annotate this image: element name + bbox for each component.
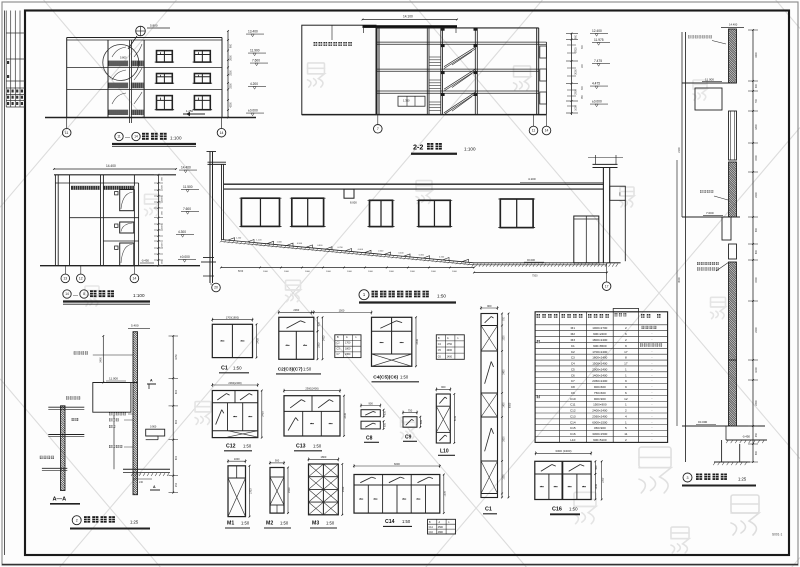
svg-text:14: 14 [220,131,224,135]
svg-text:14.400: 14.400 [729,23,738,27]
svg-text:1500: 1500 [755,155,758,161]
svg-text:C14: C14 [570,420,576,424]
svg-text:M1: M1 [571,326,576,330]
svg-text:M3: M3 [571,338,576,342]
svg-text:C5: C5 [571,367,575,371]
svg-text:6: 6 [625,391,627,395]
svg-text:—: — [73,293,78,299]
svg-text:1000: 1000 [410,271,416,273]
svg-text:700: 700 [755,98,758,103]
svg-text:6000: 6000 [394,462,400,466]
svg-text:3000: 3000 [678,277,681,283]
svg-text:1000: 1000 [326,271,332,273]
svg-text:C1: C1 [485,507,492,513]
svg-text:C9: C9 [571,391,575,395]
svg-text:150: 150 [175,482,178,487]
svg-text:C7: C7 [571,379,575,383]
svg-text:1400: 1400 [447,355,453,358]
svg-text:C8: C8 [366,436,373,442]
svg-text:2400: 2400 [342,486,345,492]
svg-text:A: A [150,379,153,383]
svg-text:1800: 1800 [755,124,758,130]
svg-text:3400: 3400 [100,357,103,363]
svg-text:M3: M3 [312,521,319,527]
svg-text:3400: 3400 [755,52,758,58]
svg-text:2: 2 [625,338,627,342]
svg-text:8: 8 [83,292,85,296]
svg-text:1:50: 1:50 [437,294,446,299]
svg-text:1000: 1000 [368,271,374,273]
svg-text:1000: 1000 [595,483,598,489]
svg-text:·: · [651,432,652,436]
svg-text:C4(C5)(C6): C4(C5)(C6) [373,375,398,381]
svg-text:C16: C16 [429,532,434,534]
svg-text:1000: 1000 [452,271,458,273]
svg-text:1500: 1500 [755,277,758,283]
svg-text:1800×2400: 1800×2400 [592,356,607,360]
svg-text:2300: 2300 [755,400,758,406]
svg-text:M1: M1 [227,521,234,527]
svg-text:11: 11 [624,432,627,436]
svg-text:2360: 2360 [345,353,351,356]
svg-text:1:50: 1:50 [400,375,409,380]
svg-text:1000: 1000 [305,271,311,273]
svg-text:2000: 2000 [447,349,453,352]
svg-text:·: · [651,379,652,383]
svg-text:C2: C2 [571,350,575,354]
svg-text:1.000: 1.000 [277,241,283,243]
svg-text:14.100: 14.100 [403,15,413,19]
svg-text:3300×1500: 3300×1500 [592,432,607,436]
svg-text:2: 2 [76,518,78,522]
svg-text:1700: 1700 [345,342,351,345]
svg-text:17: 17 [624,350,628,354]
svg-text:1900: 1900 [504,474,506,480]
svg-text:2400: 2400 [416,338,419,344]
svg-text:1700×2400: 1700×2400 [592,350,607,354]
svg-text:12: 12 [624,397,628,401]
svg-text:13: 13 [63,277,67,281]
svg-text:11: 11 [65,131,69,135]
svg-text:17: 17 [605,284,609,288]
svg-text:2: 2 [625,409,627,413]
svg-text:C12: C12 [570,409,576,413]
svg-text:4800: 4800 [438,532,444,534]
svg-text:0.600: 0.600 [358,249,364,251]
svg-text:600: 600 [383,411,386,416]
svg-text:±0.000: ±0.000 [592,100,602,104]
svg-text:2360×2400: 2360×2400 [592,379,607,383]
svg-text:1000: 1000 [234,457,240,461]
svg-text:900: 900 [230,43,233,48]
svg-text:·: · [651,350,652,354]
svg-text:900: 900 [175,419,178,424]
svg-text:·: · [651,373,652,377]
svg-text:C2(C3)(C7): C2(C3)(C7) [278,367,303,373]
svg-text:900×600: 900×600 [594,385,606,389]
svg-text:9: 9 [625,385,627,389]
svg-text:3: 3 [687,476,689,480]
svg-text:1:50: 1:50 [280,521,289,526]
svg-text:600: 600 [175,389,178,394]
svg-text:0.400: 0.400 [398,253,404,255]
svg-text:L10: L10 [440,449,449,455]
svg-text:600: 600 [420,419,423,424]
svg-text:2: 2 [625,326,627,330]
svg-text:4.475: 4.475 [592,82,600,86]
svg-text:0.900: 0.900 [297,243,303,245]
svg-text:900: 900 [755,227,758,232]
svg-text:1.350: 1.350 [403,99,410,103]
svg-text:C13: C13 [570,414,576,418]
svg-text:3300: 3300 [230,70,233,76]
svg-text:5.400: 5.400 [131,324,139,328]
svg-text:1750: 1750 [447,343,453,346]
svg-text:1.200: 1.200 [236,238,242,240]
svg-text:1:50: 1:50 [241,521,250,526]
svg-text:·: · [651,409,652,413]
svg-text:1800: 1800 [345,347,351,350]
svg-text:2: 2 [625,438,627,442]
svg-text:1:50: 1:50 [313,444,322,449]
svg-text:11.000: 11.000 [109,377,118,381]
svg-text:900×5100: 900×5100 [593,438,607,442]
svg-text:8.000: 8.000 [350,201,357,205]
svg-text:2200: 2200 [755,192,758,198]
svg-text:1000: 1000 [389,271,395,273]
svg-text:1000×2700: 1000×2700 [592,326,607,330]
svg-text:14: 14 [133,277,137,281]
svg-text:14: 14 [65,292,69,296]
svg-text:3300 (3400): 3300 (3400) [555,449,571,453]
svg-text:1:50: 1:50 [569,507,578,512]
svg-text:600: 600 [317,322,320,327]
svg-text:C16: C16 [570,432,576,436]
svg-text:·: · [651,438,652,442]
svg-text:C1: C1 [571,344,575,348]
svg-text:C9: C9 [405,435,412,441]
svg-text:11: 11 [117,135,121,139]
svg-text:A—A: A—A [53,497,67,503]
svg-text:1: 1 [625,403,627,407]
svg-text:14.400: 14.400 [181,166,191,170]
svg-text:2400: 2400 [262,411,265,417]
svg-text:2360(2400): 2360(2400) [228,381,241,385]
svg-text:·: · [651,362,652,366]
svg-text:6: 6 [625,332,627,336]
svg-text:7.000: 7.000 [706,211,714,215]
svg-text:7500: 7500 [532,275,538,278]
svg-text:C12: C12 [226,444,236,450]
svg-text:2100: 2100 [162,242,164,248]
svg-text:11.000: 11.000 [705,78,714,82]
svg-text:C16: C16 [552,507,562,513]
svg-text:1800×2400: 1800×2400 [592,338,607,342]
svg-text:1500: 1500 [602,477,605,483]
svg-text:1050: 1050 [575,105,578,111]
svg-text:1000: 1000 [284,271,290,273]
svg-text:·: · [651,426,652,430]
svg-text:2400: 2400 [344,413,347,419]
svg-text:7: 7 [377,127,379,131]
svg-text:0.200: 0.200 [439,256,445,258]
svg-text:1400×2400: 1400×2400 [592,373,607,377]
svg-text:—: — [125,135,130,141]
svg-text:1:50: 1:50 [402,519,411,524]
svg-text:1: 1 [625,373,627,377]
svg-text:1500: 1500 [339,308,345,312]
svg-text:900: 900 [275,459,280,463]
svg-text:C15: C15 [570,426,576,430]
svg-text:·: · [651,391,652,395]
svg-text:±0.000: ±0.000 [527,258,535,262]
svg-text:900: 900 [441,385,446,389]
svg-text:800: 800 [175,455,178,460]
svg-text:±0.000: ±0.000 [180,255,190,259]
svg-text:500: 500 [595,465,598,470]
svg-text:600: 600 [383,422,386,427]
svg-text:20: 20 [214,286,218,290]
svg-text:0.700: 0.700 [338,247,344,249]
svg-text:2450: 2450 [504,369,506,375]
svg-text:C11: C11 [570,403,576,407]
svg-text:900×6500: 900×6500 [593,344,607,348]
svg-text:1:50: 1:50 [303,367,312,372]
svg-text:900: 900 [368,401,373,405]
svg-text:4500: 4500 [438,527,444,529]
svg-text:1000: 1000 [347,271,353,273]
svg-text:4: 4 [625,414,627,418]
svg-text:900×2400: 900×2400 [593,332,607,336]
svg-text:750: 750 [408,408,413,412]
svg-text:1500: 1500 [162,224,164,230]
svg-text:0.300: 0.300 [419,254,425,256]
svg-text:3000: 3000 [575,69,578,75]
svg-text:1:50: 1:50 [243,444,252,449]
svg-text:2000×2400: 2000×2400 [592,367,607,371]
svg-text:5100: 5100 [454,415,457,421]
svg-text:S001-1: S001-1 [772,533,783,537]
svg-text:·: · [651,397,652,401]
svg-text:7.600: 7.600 [252,59,260,63]
svg-text:6000×1500: 6000×1500 [592,420,607,424]
svg-text:2360: 2360 [293,308,299,312]
svg-text:1: 1 [625,367,627,371]
svg-text:C6: C6 [571,373,575,377]
svg-text:·: · [651,332,652,336]
svg-text:14: 14 [545,129,549,133]
svg-text:1: 1 [625,420,627,424]
svg-text:11.900: 11.900 [250,49,260,53]
svg-text:·: · [651,420,652,424]
svg-text:1700(1800): 1700(1800) [226,316,239,320]
svg-text:M2: M2 [571,332,576,336]
svg-text:1.100: 1.100 [256,239,262,241]
svg-text:450×900: 450×900 [594,426,606,430]
svg-text:1000: 1000 [263,271,269,273]
svg-text:-0.450: -0.450 [742,435,750,439]
svg-text:2400: 2400 [256,338,259,344]
svg-text:0.800: 0.800 [317,245,323,247]
svg-text:C14: C14 [385,519,395,525]
svg-text:14.400: 14.400 [106,164,116,168]
svg-text:0.500: 0.500 [378,251,384,253]
svg-text:13.400: 13.400 [248,30,258,34]
svg-text:·: · [651,356,652,360]
svg-text:4.100: 4.100 [528,177,536,181]
svg-text:7.475: 7.475 [594,59,602,63]
svg-text:1800: 1800 [317,342,320,348]
svg-text:4.300: 4.300 [178,230,186,234]
svg-text:1:50: 1:50 [233,366,242,371]
svg-text:6500: 6500 [508,402,511,408]
svg-text:1500: 1500 [162,196,164,202]
svg-text:4200: 4200 [230,102,233,108]
svg-text:C13: C13 [296,444,306,450]
svg-text:A: A [153,485,156,489]
svg-text:240: 240 [139,481,144,484]
svg-text:12.400: 12.400 [592,29,602,33]
svg-text:3300: 3300 [230,83,233,89]
svg-text:1:25: 1:25 [130,520,139,525]
svg-text:11: 11 [532,129,536,133]
svg-text:900: 900 [575,34,578,39]
svg-text:1:25: 1:25 [738,477,747,482]
svg-text:1000: 1000 [755,367,758,373]
svg-text:2400×2400: 2400×2400 [592,409,607,413]
svg-text:9: 9 [625,379,627,383]
svg-text:C3: C3 [571,356,575,360]
svg-text:·: · [651,385,652,389]
svg-text:11.975: 11.975 [594,38,604,42]
svg-text:·: · [651,367,652,371]
svg-text:8: 8 [625,356,627,360]
svg-text:1050: 1050 [175,354,178,360]
svg-text:1:100: 1:100 [464,147,476,152]
svg-text:1:50: 1:50 [326,521,335,526]
svg-text:2700: 2700 [249,488,252,494]
svg-text:1800: 1800 [321,455,327,459]
svg-text:450: 450 [755,432,758,437]
svg-text:C8: C8 [571,385,575,389]
svg-text:1500: 1500 [504,335,506,341]
svg-text:5.800: 5.800 [120,56,127,60]
svg-text:·: · [651,414,652,418]
svg-text:1400: 1400 [504,402,506,408]
svg-text:2925: 2925 [575,47,578,53]
svg-text:0.900: 0.900 [150,426,157,429]
svg-text:750×600: 750×600 [594,391,606,395]
svg-text:1:100: 1:100 [170,136,182,141]
svg-text:±0.000: ±0.000 [698,420,707,424]
svg-text:1500×900: 1500×900 [593,403,607,407]
svg-text:12: 12 [79,277,83,281]
svg-text:5150: 5150 [238,271,244,273]
svg-text:600: 600 [755,249,758,254]
svg-text:900×900: 900×900 [594,397,606,401]
svg-text:900: 900 [755,450,758,455]
svg-text:300: 300 [755,83,758,88]
svg-text:C14: C14 [429,527,434,529]
svg-text:C10: C10 [570,397,576,401]
svg-text:-0.450: -0.450 [141,259,149,263]
svg-text:2600: 2600 [230,55,233,61]
svg-text:7.600: 7.600 [183,207,191,211]
svg-text:11.500: 11.500 [183,185,193,189]
svg-text:5.800: 5.800 [150,24,158,28]
svg-text:2600: 2600 [504,436,506,442]
svg-text:1500×2400: 1500×2400 [592,362,607,366]
svg-text:2900: 2900 [575,89,578,95]
svg-text:C4: C4 [571,362,575,366]
svg-text:1000: 1000 [431,271,437,273]
svg-text:5: 5 [625,426,627,430]
svg-text:2360(2400): 2360(2400) [305,387,318,391]
svg-text:M2: M2 [266,521,273,527]
svg-text:·: · [651,338,652,342]
svg-text:14: 14 [134,135,138,139]
svg-text:2360×2400: 2360×2400 [592,414,607,418]
svg-text:900: 900 [487,304,492,308]
svg-text:2400: 2400 [288,487,291,493]
svg-text:1:100: 1:100 [133,293,145,298]
svg-text:1500: 1500 [444,490,447,496]
svg-text:±0.000: ±0.000 [248,109,258,113]
svg-text:17: 17 [624,362,628,366]
svg-text:2100: 2100 [678,147,681,153]
svg-text:2400: 2400 [322,335,325,341]
svg-text:2200: 2200 [755,327,758,333]
svg-text:2-2: 2-2 [413,143,423,152]
svg-text:L10: L10 [570,438,575,442]
svg-text:4.200: 4.200 [250,82,258,86]
svg-text:9: 9 [625,344,627,348]
svg-text:C1: C1 [221,366,228,372]
svg-text:·: · [651,403,652,407]
